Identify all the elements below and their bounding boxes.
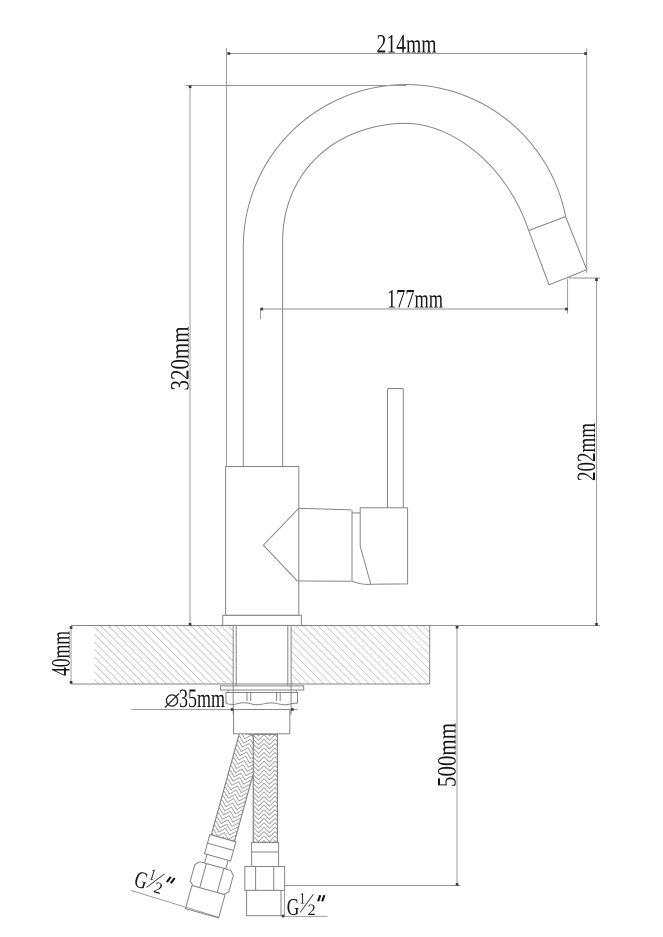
svg-text:202mm: 202mm [572, 423, 601, 481]
svg-text:214mm: 214mm [377, 30, 437, 59]
svg-text:320mm: 320mm [166, 327, 195, 391]
svg-text:500mm: 500mm [433, 723, 462, 787]
svg-text:35mm: 35mm [179, 684, 225, 713]
svg-text:40mm: 40mm [47, 631, 76, 676]
svg-text:177mm: 177mm [387, 285, 443, 314]
